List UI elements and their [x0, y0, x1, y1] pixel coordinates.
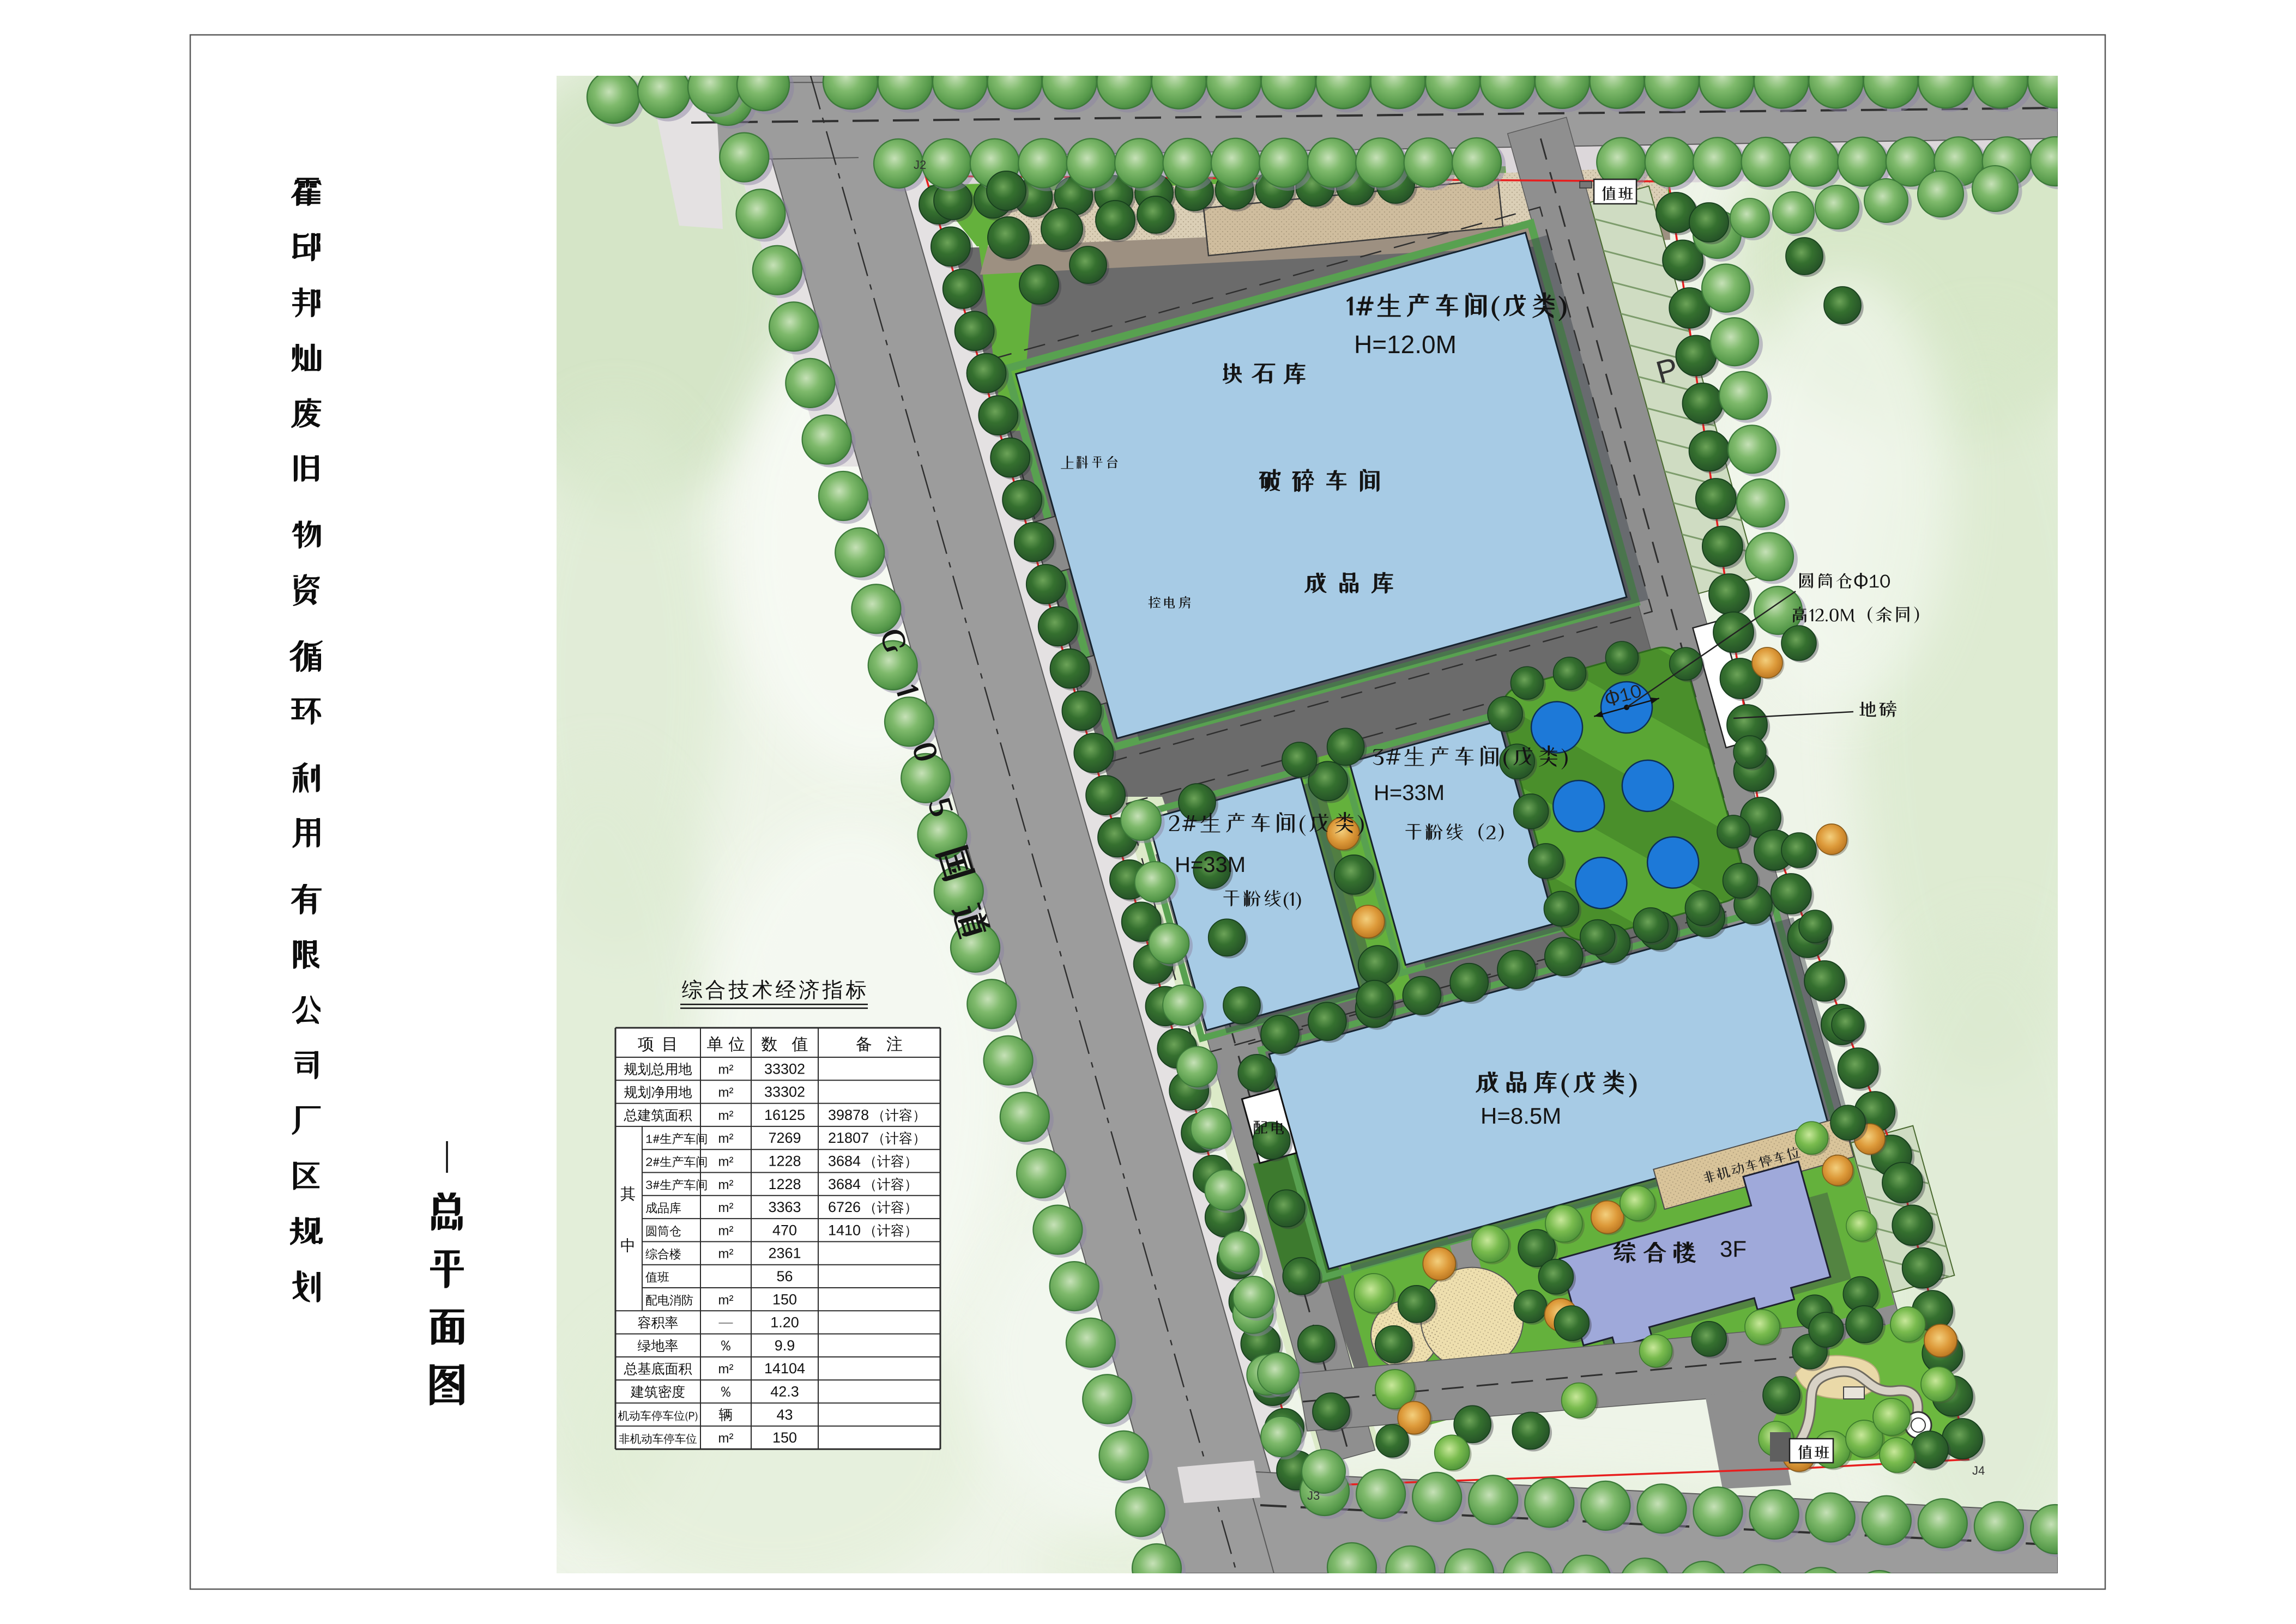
svg-text:m²: m² [718, 1062, 734, 1077]
svg-text:m²: m² [718, 1247, 734, 1262]
svg-text:42.3: 42.3 [770, 1384, 799, 1400]
svg-text:33302: 33302 [764, 1084, 805, 1100]
svg-text:m²: m² [718, 1293, 734, 1307]
svg-text:m²: m² [718, 1431, 734, 1446]
svg-text:1228: 1228 [768, 1176, 801, 1192]
svg-text:43: 43 [776, 1407, 793, 1423]
svg-text:6726: 6726 [828, 1199, 861, 1215]
svg-text:m²: m² [718, 1178, 734, 1192]
svg-text:3F: 3F [1720, 1236, 1747, 1262]
svg-text:150: 150 [772, 1291, 797, 1307]
svg-text:m²: m² [718, 1362, 734, 1377]
svg-text:470: 470 [772, 1222, 797, 1238]
svg-text:m²: m² [718, 1201, 734, 1215]
svg-text:33302: 33302 [764, 1061, 805, 1077]
svg-text:7269: 7269 [768, 1130, 801, 1146]
svg-text:1410: 1410 [828, 1222, 861, 1238]
svg-text:H=8.5M: H=8.5M [1481, 1103, 1561, 1129]
svg-text:56: 56 [776, 1268, 793, 1284]
svg-text:150: 150 [772, 1429, 797, 1446]
svg-text:21807: 21807 [828, 1130, 869, 1146]
svg-text:3684: 3684 [828, 1153, 861, 1169]
svg-text:m²: m² [718, 1086, 734, 1100]
svg-text:H=33M: H=33M [1374, 781, 1445, 805]
svg-text:16125: 16125 [764, 1107, 805, 1123]
svg-text:14104: 14104 [764, 1360, 805, 1377]
svg-text:H=12.0M: H=12.0M [1354, 330, 1457, 359]
svg-text:m²: m² [718, 1155, 734, 1169]
svg-text:2361: 2361 [768, 1245, 801, 1262]
svg-text:1228: 1228 [768, 1153, 801, 1169]
svg-text:9.9: 9.9 [775, 1337, 795, 1354]
svg-text:m²: m² [718, 1131, 734, 1146]
svg-text:m²: m² [718, 1108, 734, 1123]
svg-text:H=33M: H=33M [1175, 853, 1246, 877]
svg-text:1.20: 1.20 [770, 1314, 799, 1331]
svg-text:J3: J3 [1307, 1489, 1320, 1502]
svg-text:J2: J2 [914, 158, 926, 172]
svg-text:3363: 3363 [768, 1199, 801, 1215]
svg-text:39878: 39878 [828, 1107, 869, 1123]
svg-text:m²: m² [718, 1223, 734, 1238]
svg-text:3684: 3684 [828, 1176, 861, 1192]
svg-text:J4: J4 [1972, 1464, 1985, 1477]
